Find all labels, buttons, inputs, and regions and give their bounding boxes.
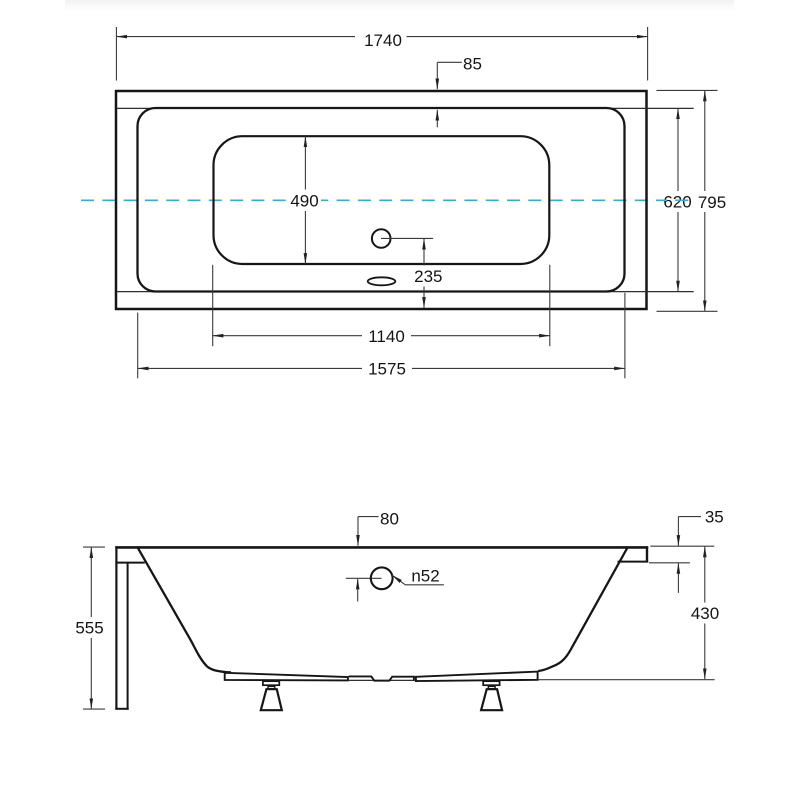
svg-text:235: 235 bbox=[414, 267, 442, 286]
svg-text:1740: 1740 bbox=[364, 31, 402, 50]
svg-text:1140: 1140 bbox=[368, 327, 405, 346]
svg-text:620: 620 bbox=[663, 193, 691, 212]
svg-text:430: 430 bbox=[691, 604, 719, 623]
svg-text:80: 80 bbox=[380, 510, 399, 529]
svg-text:795: 795 bbox=[698, 193, 726, 212]
svg-text:490: 490 bbox=[290, 192, 318, 211]
svg-text:85: 85 bbox=[463, 55, 482, 74]
svg-text:35: 35 bbox=[705, 508, 724, 527]
svg-text:555: 555 bbox=[75, 619, 103, 638]
svg-text:1575: 1575 bbox=[368, 360, 406, 379]
svg-text:n52: n52 bbox=[411, 567, 439, 586]
